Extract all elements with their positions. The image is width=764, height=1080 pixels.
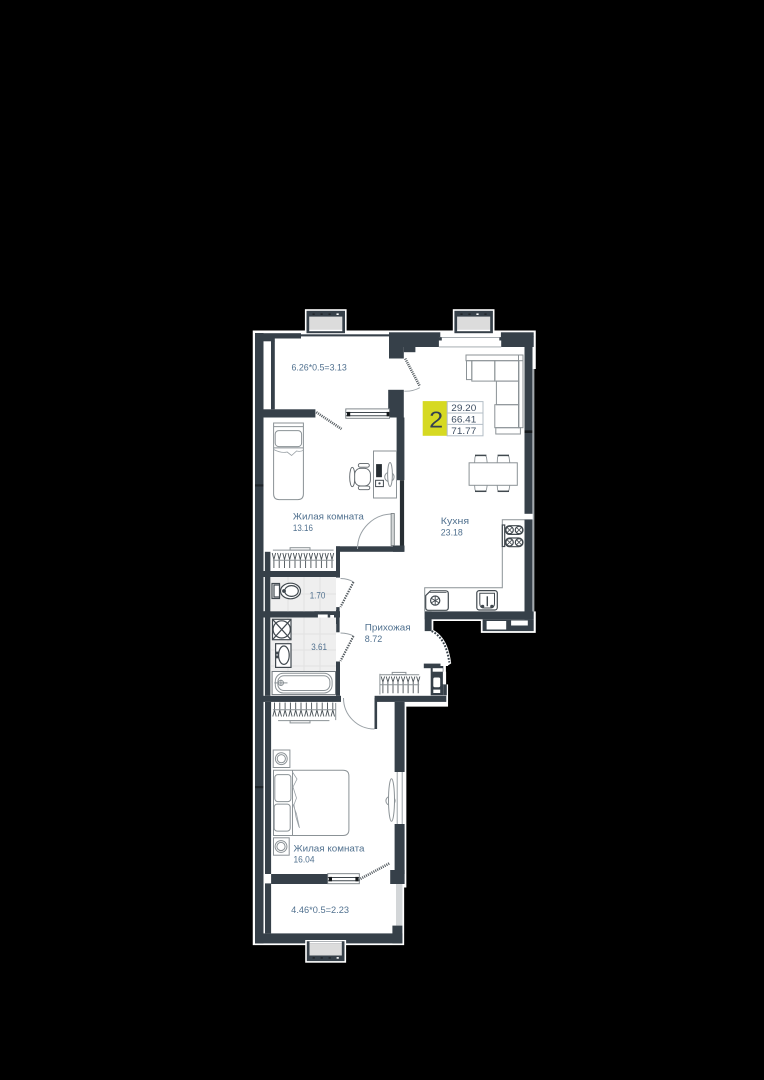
svg-text:Прихожая: Прихожая xyxy=(365,623,411,633)
svg-text:6.26*0.5=3.13: 6.26*0.5=3.13 xyxy=(292,362,347,372)
svg-text:66.41: 66.41 xyxy=(451,415,476,425)
svg-text:16.04: 16.04 xyxy=(294,855,315,865)
svg-text:4.46*0.5=2.23: 4.46*0.5=2.23 xyxy=(291,905,349,915)
svg-text:23.18: 23.18 xyxy=(441,528,463,538)
svg-text:2: 2 xyxy=(429,406,443,432)
svg-text:8.72: 8.72 xyxy=(365,634,383,644)
svg-text:71.77: 71.77 xyxy=(451,426,476,436)
svg-text:Кухня: Кухня xyxy=(441,516,470,526)
svg-text:Жилая комната: Жилая комната xyxy=(293,512,364,522)
svg-text:13.16: 13.16 xyxy=(293,523,313,533)
svg-text:1.70: 1.70 xyxy=(310,591,326,601)
svg-text:Жилая комната: Жилая комната xyxy=(294,843,365,853)
svg-text:29.20: 29.20 xyxy=(451,403,476,413)
svg-text:3.61: 3.61 xyxy=(311,642,327,652)
